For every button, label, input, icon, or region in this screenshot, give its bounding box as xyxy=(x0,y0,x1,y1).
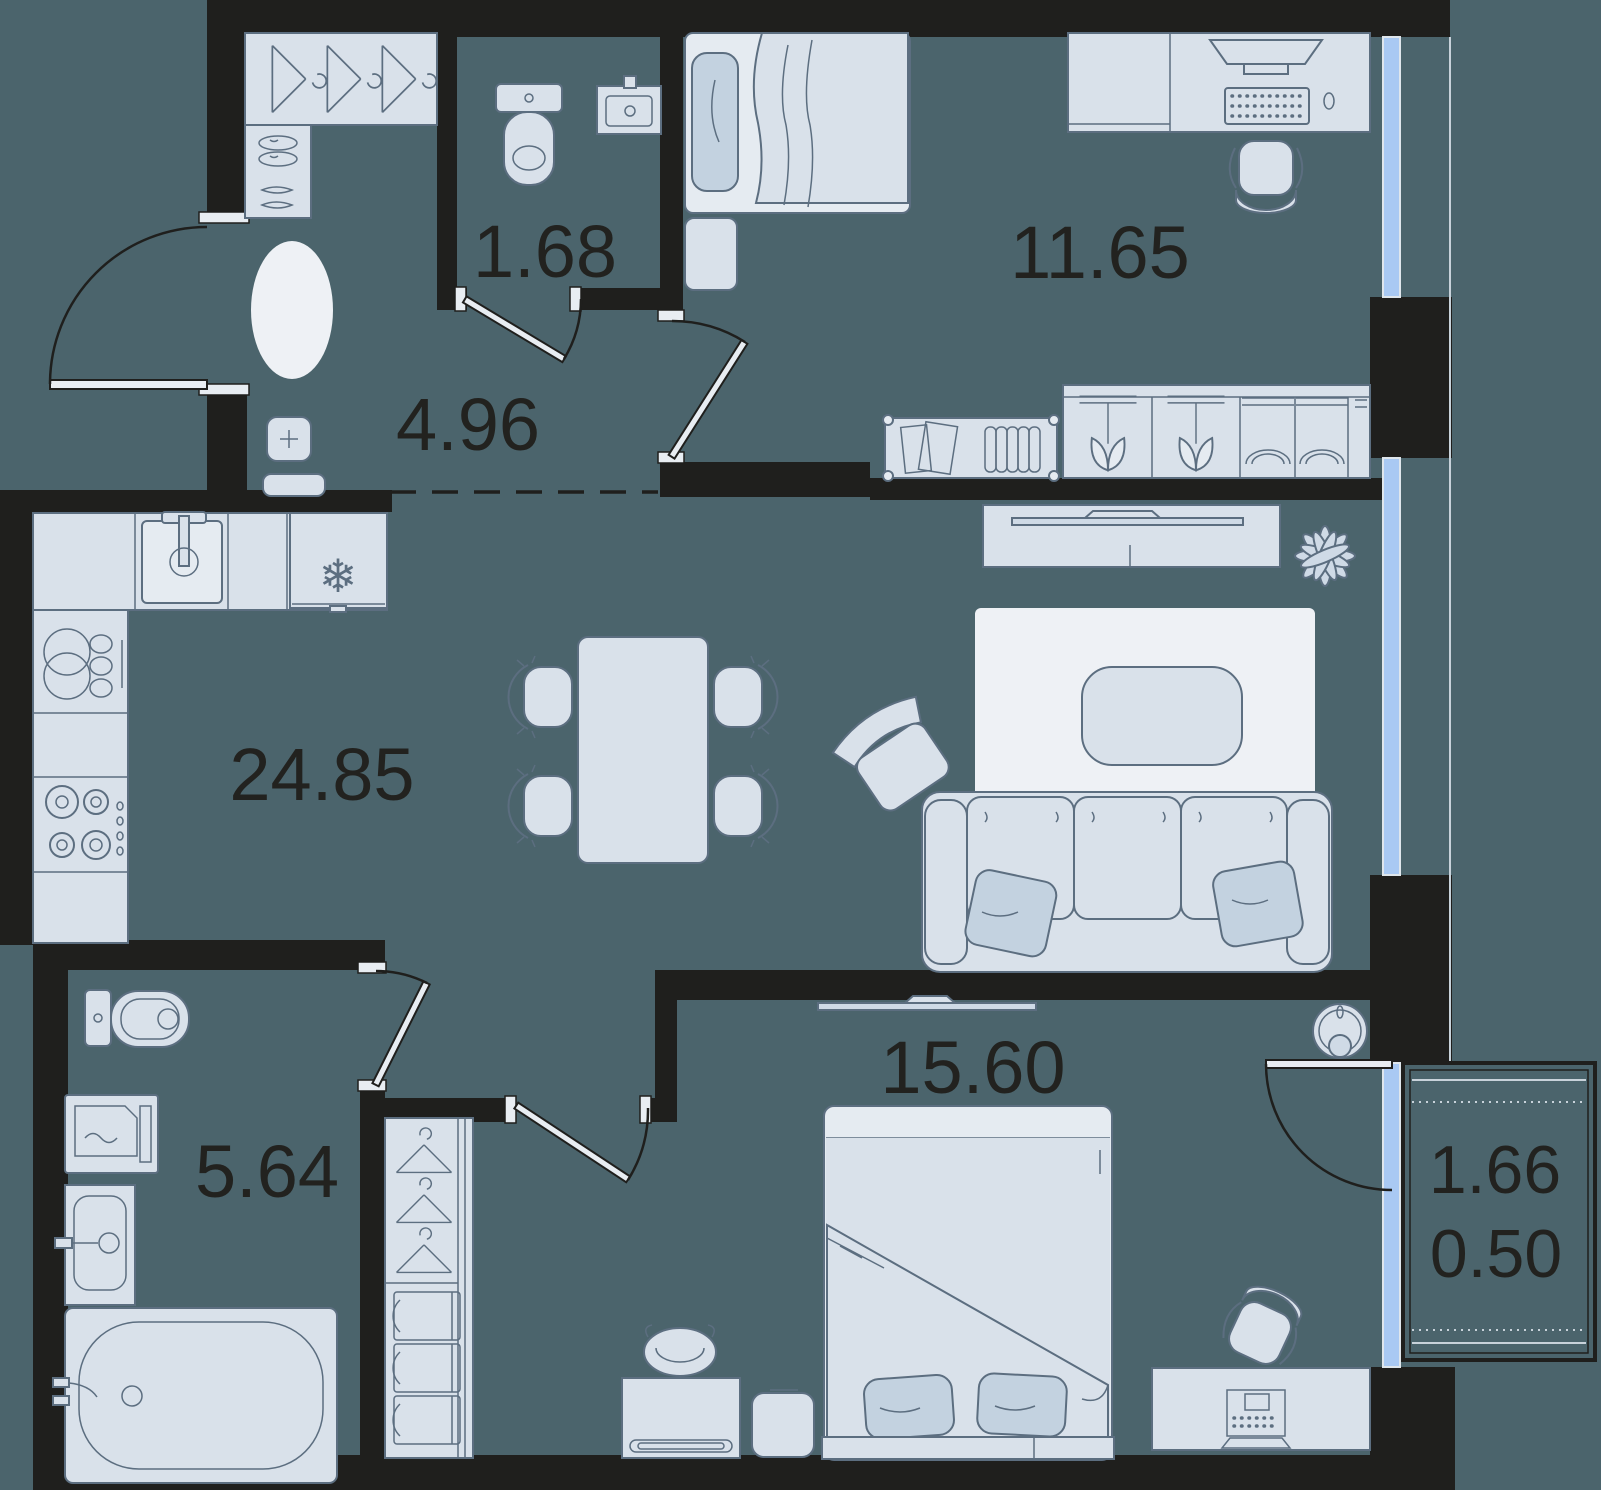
bathtub xyxy=(53,1308,337,1483)
room-label-wc: 1.68 xyxy=(473,210,617,293)
room-label-bedroom: 11.65 xyxy=(1010,211,1190,294)
hall-rug xyxy=(251,241,333,379)
pillow xyxy=(976,1373,1067,1438)
dining-set xyxy=(508,637,777,863)
dining-chair xyxy=(508,656,572,738)
living-zone xyxy=(827,505,1355,972)
room-label-kitchen-living: 24.85 xyxy=(229,733,414,816)
kitchen: ❄ xyxy=(33,512,387,943)
pillow xyxy=(863,1374,955,1440)
fridge: ❄ xyxy=(290,513,387,612)
room-label-bathroom: 5.64 xyxy=(195,1130,339,1213)
robot-vacuum-icon xyxy=(1313,1004,1367,1058)
bedroom-door xyxy=(658,310,747,463)
dressing-table xyxy=(622,1325,740,1458)
tv-icon xyxy=(1012,518,1243,525)
floor-plan-canvas: ❄ xyxy=(0,0,1601,1490)
fridge-icon: ❄ xyxy=(319,549,358,603)
tv-console xyxy=(983,505,1280,567)
master-bedroom-door xyxy=(505,1096,651,1182)
single-bed xyxy=(685,33,910,213)
master-bedroom-furniture xyxy=(385,996,1370,1460)
wc-sink xyxy=(597,76,661,134)
dining-chair xyxy=(508,765,572,847)
pouf xyxy=(752,1390,814,1457)
master-wardrobe xyxy=(385,1118,473,1458)
nightstand xyxy=(685,218,737,290)
doormat xyxy=(263,474,325,496)
window-bedroom xyxy=(1383,37,1400,297)
room-label-hallway: 4.96 xyxy=(396,383,540,466)
balcony xyxy=(1403,1063,1595,1360)
wc-fixtures xyxy=(496,76,661,185)
balcony-door-glazing xyxy=(1383,1063,1400,1367)
office-chair xyxy=(1230,141,1303,213)
bathroom-sink xyxy=(55,1185,135,1305)
monitor-stand xyxy=(1244,64,1288,74)
room-label-balcony: 1.66 xyxy=(1429,1132,1561,1208)
balcony-door xyxy=(1266,1060,1392,1190)
toilet xyxy=(496,84,562,185)
kitchen-sink xyxy=(142,512,222,603)
shoe-shelf xyxy=(245,125,311,218)
monitor-icon xyxy=(1210,40,1322,64)
washing-machine xyxy=(65,1095,158,1173)
toilet xyxy=(85,990,189,1047)
floor-plan: ❄ xyxy=(0,0,1601,1490)
stool xyxy=(644,1328,716,1376)
bathroom-fixtures xyxy=(53,990,337,1483)
bench xyxy=(883,415,1059,481)
sofa-pillow xyxy=(963,868,1059,959)
wardrobe xyxy=(1063,385,1370,478)
dining-chair xyxy=(714,656,778,738)
tv-icon xyxy=(818,1003,1036,1010)
double-bed xyxy=(822,1106,1114,1460)
dining-chair xyxy=(714,765,778,847)
sofa xyxy=(922,792,1332,972)
bathroom-door xyxy=(358,962,430,1091)
wc-door xyxy=(455,287,581,362)
room-label-master-bedroom: 15.60 xyxy=(880,1026,1065,1109)
plant-icon xyxy=(1295,526,1355,586)
dining-table xyxy=(578,637,708,863)
room-label-balcony-reduced: 0.50 xyxy=(1430,1216,1562,1292)
coffee-table xyxy=(1082,667,1242,765)
desk xyxy=(1152,1368,1370,1450)
floor-drain xyxy=(267,417,311,461)
desk xyxy=(1068,33,1370,132)
window-living-room xyxy=(1383,458,1400,875)
keyboard-icon xyxy=(1225,88,1309,124)
office-chair xyxy=(1216,1277,1312,1373)
entry-door xyxy=(50,212,249,395)
